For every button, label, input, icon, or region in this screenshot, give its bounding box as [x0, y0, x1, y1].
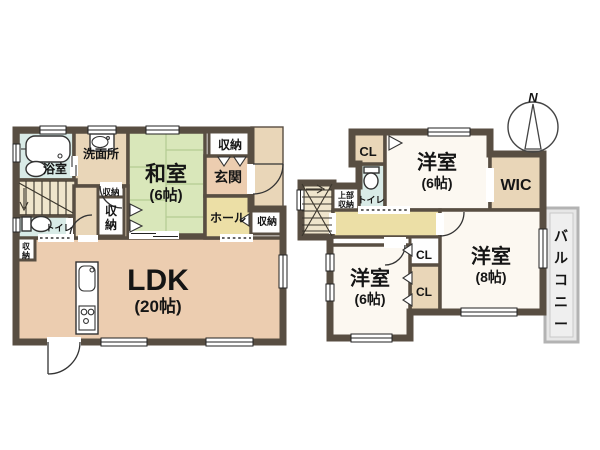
compass-north-icon: N [508, 90, 558, 152]
western6-top-size: (6帖) [421, 175, 452, 191]
genkan-label: 玄関 [214, 169, 242, 185]
floor-2-plan: N CL 洋室 (6帖) WIC トイレ 上部 収納 洋室 (8帖) CL CL… [297, 90, 578, 342]
svg-text:コ: コ [554, 272, 568, 288]
floorplan-svg: 浴室 洗面所 和室 (6帖) 収納 玄関 ホール 収納 収納 収 納 トイレ 収… [0, 0, 600, 450]
washroom-label: 洗面所 [83, 146, 119, 161]
svg-text:ル: ル [554, 250, 568, 266]
ldk-size: (20帖) [134, 296, 181, 316]
storage-mid-char2: 納 [105, 217, 117, 232]
closet-top-label: CL [359, 144, 376, 159]
storage-genkan-label: 収納 [218, 137, 242, 152]
upper-storage-line2: 収納 [338, 199, 354, 209]
ldk-label: LDK [127, 264, 189, 297]
toilet-1f-label: トイレ [45, 223, 72, 233]
western8-size: (8帖) [475, 269, 506, 285]
storage-mid-char1: 収 [105, 204, 118, 218]
closet2-label: CL [416, 285, 432, 299]
floor-1-plan: 浴室 洗面所 和室 (6帖) 収納 玄関 ホール 収納 収納 収 納 トイレ 収… [13, 126, 287, 374]
bath-label: 浴室 [43, 161, 67, 176]
closet1-label: CL [416, 248, 432, 262]
svg-text:ニ: ニ [554, 294, 568, 310]
svg-text:ー: ー [554, 316, 568, 332]
storage-mid-label: 収納 [102, 187, 119, 197]
western6-bottom-size: (6帖) [354, 291, 385, 307]
toilet-2f-icon [364, 167, 379, 189]
kitchen-counter [76, 262, 98, 334]
bathtub-icon [21, 136, 70, 162]
upper-storage-line1: 上部 [338, 190, 354, 200]
porch-area [251, 127, 283, 209]
washitsu-size: (6帖) [149, 186, 182, 204]
compass-north-label: N [528, 90, 538, 105]
storage-bl-char1: 収 [22, 241, 31, 251]
wic-label: WIC [500, 177, 532, 194]
svg-text:バ: バ [554, 228, 568, 244]
storage-hall-label: 収納 [257, 215, 277, 228]
storage-bl-char2: 納 [22, 250, 30, 260]
western6-top-label: 洋室 [417, 150, 457, 174]
western6-bottom-label: 洋室 [350, 266, 390, 290]
western8-label: 洋室 [471, 244, 511, 268]
floorplan-page: 浴室 洗面所 和室 (6帖) 収納 玄関 ホール 収納 収納 収 納 トイレ 収… [0, 0, 600, 450]
balcony-label: バ ル コ ニ ー [554, 228, 568, 332]
washitsu-label: 和室 [145, 162, 187, 186]
toilet-2f-label: トイレ [357, 195, 384, 205]
hall-label: ホール [210, 211, 246, 225]
corridor-2f [333, 210, 440, 237]
